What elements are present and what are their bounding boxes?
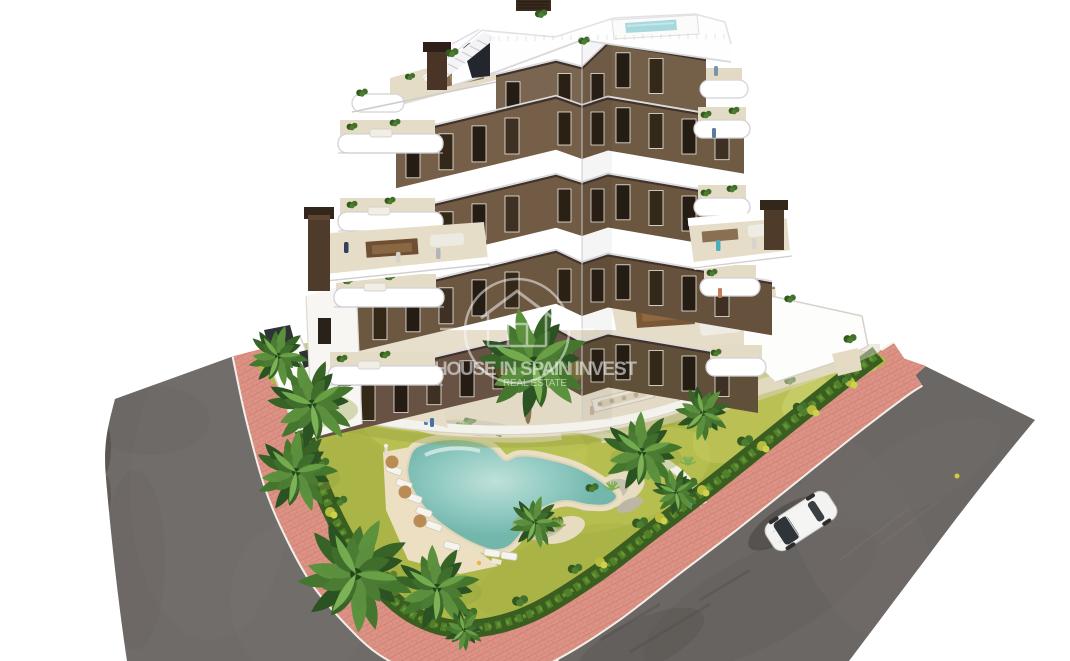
svg-text:HOUSE IN SPAIN INVEST: HOUSE IN SPAIN INVEST [434, 359, 638, 380]
svg-text:REAL ESTATE: REAL ESTATE [503, 378, 569, 389]
